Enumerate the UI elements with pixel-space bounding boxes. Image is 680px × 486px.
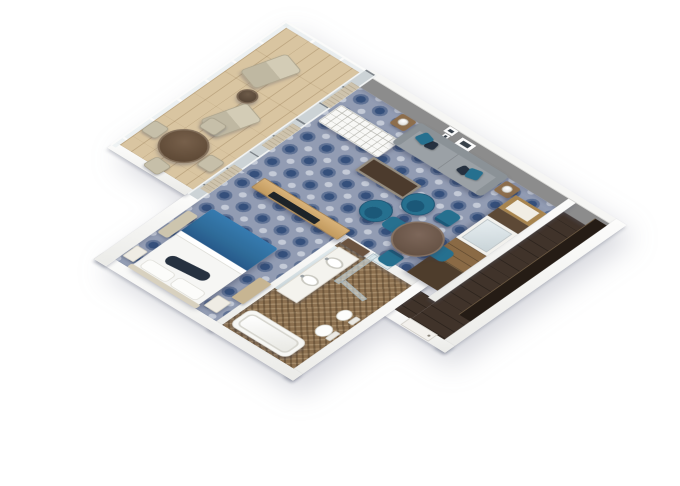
- suite-floorplan: [13, 28, 666, 453]
- sofa-cushion-seam: [437, 154, 458, 169]
- wall-art-image: [447, 129, 455, 134]
- faucet-icon: [300, 274, 306, 278]
- door-handle-icon: [427, 334, 431, 337]
- floorplan-render-canvas: [0, 0, 680, 486]
- faucet-icon: [324, 257, 330, 261]
- table-lamp-icon: [395, 117, 411, 127]
- table-lamp-icon: [499, 184, 515, 194]
- suite-shadow-wrapper: [0, 0, 680, 486]
